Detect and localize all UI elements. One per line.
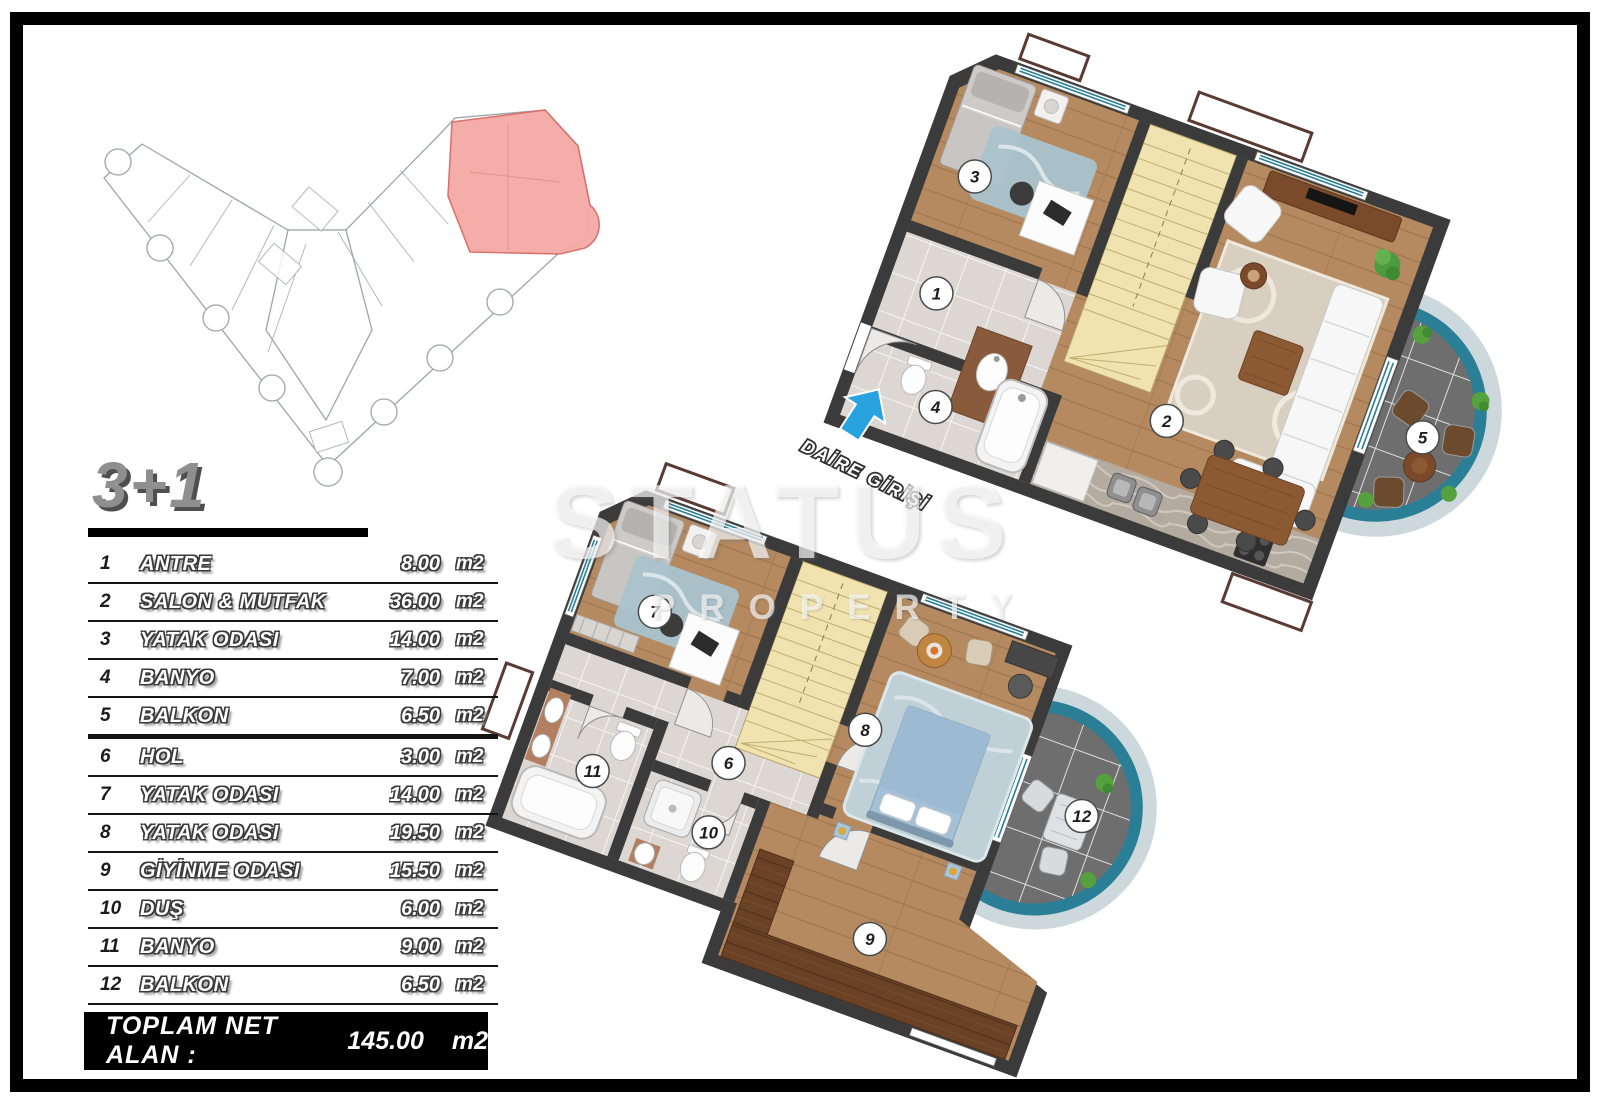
room-name: BANYO xyxy=(140,936,352,959)
room-number: 8 xyxy=(849,713,882,746)
room-area: 6.00 xyxy=(352,898,440,921)
svg-text:11: 11 xyxy=(584,762,602,781)
room-name: HOL xyxy=(140,746,352,769)
svg-text:4: 4 xyxy=(930,398,941,417)
room-area: 14.00 xyxy=(352,784,440,807)
room-number: 6 xyxy=(712,747,745,780)
table-row: 9 GİYİNME ODASI 15.50 m2 xyxy=(88,853,498,891)
room-no: 4 xyxy=(88,667,140,689)
building-site-plan xyxy=(104,110,599,486)
table-row: 8 YATAK ODASI 19.50 m2 xyxy=(88,815,498,853)
floor-plan-page: { "title": { "label": "3+1" }, "watermar… xyxy=(0,0,1600,1104)
room-area-unit: m2 xyxy=(440,705,498,727)
total-unit: m2 xyxy=(452,1027,488,1056)
total-label: TOPLAM NET ALAN : xyxy=(106,1012,313,1070)
total-area-bar: TOPLAM NET ALAN : 145.00 m2 xyxy=(84,1012,488,1070)
room-name: BANYO xyxy=(140,667,352,690)
room-number: 10 xyxy=(692,816,725,849)
table-row: 11 BANYO 9.00 m2 xyxy=(88,929,498,967)
room-area-unit: m2 xyxy=(440,822,498,844)
table-row: 7 YATAK ODASI 14.00 m2 xyxy=(88,777,498,815)
room-name: ANTRE xyxy=(140,553,352,576)
room-no: 6 xyxy=(88,746,140,768)
room-area-unit: m2 xyxy=(440,898,498,920)
room-area-unit: m2 xyxy=(440,746,498,768)
unit-type-title: 3+1 xyxy=(92,448,207,522)
room-area: 8.00 xyxy=(352,553,440,576)
room-name: YATAK ODASI xyxy=(140,822,352,845)
room-no: 8 xyxy=(88,822,140,844)
room-no: 7 xyxy=(88,784,140,806)
room-area: 7.00 xyxy=(352,667,440,690)
table-row: 2 SALON & MUTFAK 36.00 m2 xyxy=(88,584,498,622)
room-area: 9.00 xyxy=(352,936,440,959)
room-number: 3 xyxy=(958,160,991,193)
svg-text:12: 12 xyxy=(1072,807,1091,826)
room-number: 2 xyxy=(1150,404,1183,437)
room-no: 1 xyxy=(88,553,140,575)
room-area-unit: m2 xyxy=(440,784,498,806)
room-no: 12 xyxy=(88,974,140,996)
table-row: 6 HOL 3.00 m2 xyxy=(88,739,498,777)
table-row: 10 DUŞ 6.00 m2 xyxy=(88,891,498,929)
table-row: 4 BANYO 7.00 m2 xyxy=(88,660,498,698)
room-no: 11 xyxy=(88,936,140,958)
room-area: 15.50 xyxy=(352,860,440,883)
room-no: 5 xyxy=(88,705,140,727)
room-area-unit: m2 xyxy=(440,667,498,689)
wicker-chair xyxy=(1373,477,1404,508)
room-area-table: 1 ANTRE 8.00 m2 2 SALON & MUTFAK 36.00 m… xyxy=(88,546,498,1005)
room-name: BALKON xyxy=(140,974,352,997)
svg-text:6: 6 xyxy=(724,754,734,773)
highlighted-unit xyxy=(448,110,599,254)
watermark-property: PROPERTY xyxy=(652,588,1037,628)
room-number: 11 xyxy=(576,755,609,788)
watermark-status: STATUS xyxy=(548,462,1016,583)
room-name: SALON & MUTFAK xyxy=(140,591,352,614)
room-name: YATAK ODASI xyxy=(140,629,352,652)
wicker-chair xyxy=(1441,423,1476,458)
svg-text:1: 1 xyxy=(932,284,941,303)
room-area-unit: m2 xyxy=(440,591,498,613)
room-no: 10 xyxy=(88,898,140,920)
room-area: 14.00 xyxy=(352,629,440,652)
room-name: YATAK ODASI xyxy=(140,784,352,807)
table-row: 5 BALKON 6.50 m2 xyxy=(88,698,498,739)
table-row: 3 YATAK ODASI 14.00 m2 xyxy=(88,622,498,660)
room-number: 12 xyxy=(1065,800,1098,833)
room-area: 36.00 xyxy=(352,591,440,614)
svg-text:2: 2 xyxy=(1161,412,1172,431)
table-row: 12 BALKON 6.50 m2 xyxy=(88,967,498,1005)
room-no: 2 xyxy=(88,591,140,613)
room-no: 3 xyxy=(88,629,140,651)
room-area-unit: m2 xyxy=(440,629,498,651)
svg-text:5: 5 xyxy=(1418,428,1428,447)
room-number: 4 xyxy=(919,390,952,423)
room-area: 6.50 xyxy=(352,974,440,997)
room-number: 9 xyxy=(853,923,886,956)
table-row: 1 ANTRE 8.00 m2 xyxy=(88,546,498,584)
room-no: 9 xyxy=(88,860,140,882)
room-area: 3.00 xyxy=(352,746,440,769)
svg-text:3: 3 xyxy=(970,167,980,186)
room-area: 6.50 xyxy=(352,705,440,728)
svg-text:9: 9 xyxy=(865,930,875,949)
room-number: 1 xyxy=(920,277,953,310)
room-area: 19.50 xyxy=(352,822,440,845)
room-area-unit: m2 xyxy=(440,974,498,996)
title-divider xyxy=(88,528,368,537)
room-name: GİYİNME ODASI xyxy=(140,860,352,883)
total-value: 145.00 xyxy=(347,1027,423,1056)
room-area-unit: m2 xyxy=(440,860,498,882)
room-area-unit: m2 xyxy=(440,553,498,575)
svg-text:10: 10 xyxy=(699,823,718,842)
room-name: DUŞ xyxy=(140,898,352,921)
room-name: BALKON xyxy=(140,705,352,728)
svg-text:8: 8 xyxy=(860,721,870,740)
room-area-unit: m2 xyxy=(440,936,498,958)
room-number: 5 xyxy=(1406,421,1439,454)
